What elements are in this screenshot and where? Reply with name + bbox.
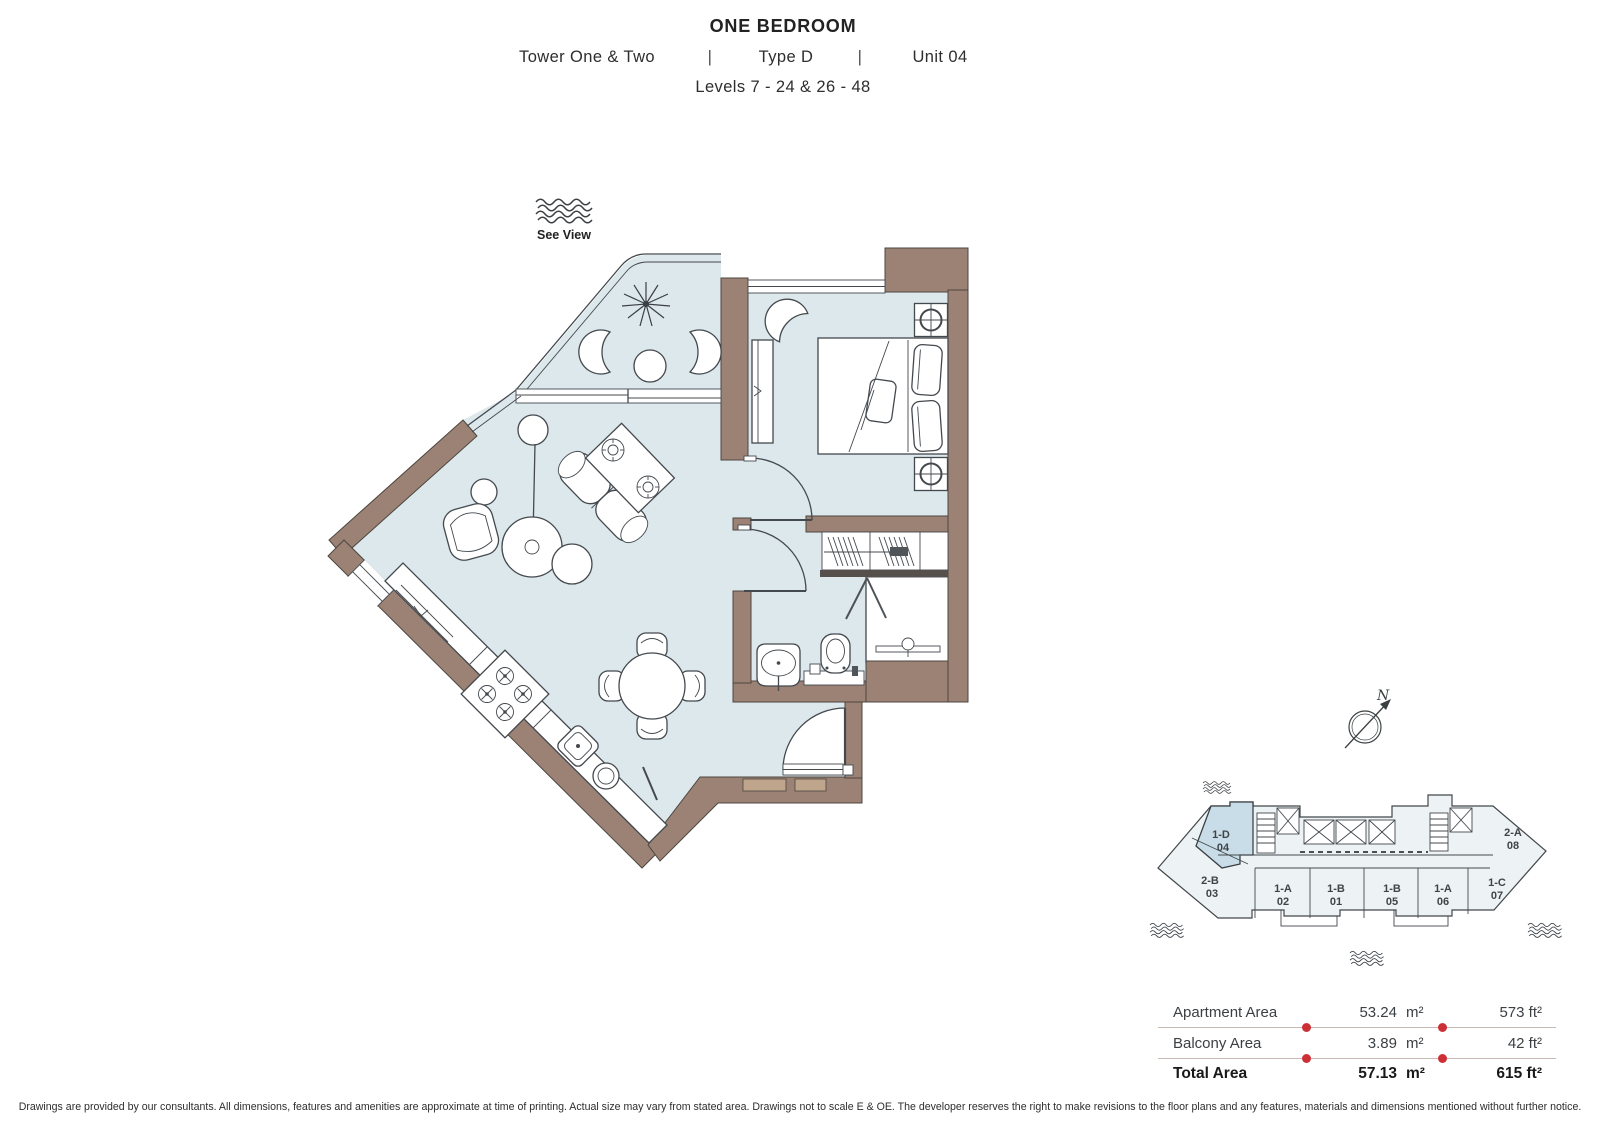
unit-label: 1-A	[1434, 883, 1452, 895]
unit-label: 1-B	[1327, 883, 1345, 895]
bed-icon	[818, 338, 948, 454]
area-value-ft: 615 ft²	[1442, 1065, 1542, 1083]
area-value-m2: 53.24	[1335, 1004, 1397, 1021]
keyplan-waves-icon	[1350, 951, 1384, 965]
table-row: Balcony Area 3.89 m² 42 ft²	[1158, 1028, 1556, 1058]
area-table: Apartment Area 53.24 m² 573 ft² Balcony …	[1158, 997, 1556, 1089]
unit-label: 04	[1217, 842, 1230, 854]
unit-label: 01	[1330, 896, 1342, 908]
area-unit-m2: m²	[1397, 1065, 1442, 1083]
unit-label: 2-B	[1201, 875, 1219, 887]
area-label: Balcony Area	[1173, 1035, 1335, 1052]
unit-label: 08	[1507, 840, 1519, 852]
entry-mat	[795, 779, 826, 791]
area-value-m2: 3.89	[1335, 1035, 1397, 1052]
wall-top-right-block	[885, 248, 968, 292]
red-dot-icon	[1438, 1054, 1447, 1063]
see-view-label: See View	[537, 228, 591, 242]
column-marker-icon	[915, 458, 948, 491]
table-divider	[1158, 1058, 1556, 1059]
wall-shower-corner	[866, 661, 948, 702]
north-compass-icon: N	[1345, 688, 1391, 748]
shower-drain	[902, 638, 914, 650]
floorplan-drawing: See View N	[0, 0, 1600, 1132]
table-divider	[1158, 1027, 1556, 1028]
unit-label: 1-D	[1212, 829, 1230, 841]
balcony-table-icon	[634, 350, 666, 382]
floorplan-page: ONE BEDROOM Tower One & Two | Type D | U…	[0, 0, 1600, 1132]
closet	[820, 532, 948, 577]
disclaimer-text: Drawings are provided by our consultants…	[0, 1101, 1600, 1113]
side-table-icon	[471, 479, 497, 505]
keyplan-waves-icon	[1150, 923, 1184, 937]
area-label: Apartment Area	[1173, 1004, 1335, 1021]
wall-bedroom-left	[721, 278, 748, 460]
wall-right	[948, 290, 968, 702]
closet-front	[820, 570, 948, 577]
unit-label: 1-A	[1274, 883, 1292, 895]
table-row: Apartment Area 53.24 m² 573 ft²	[1158, 997, 1556, 1027]
compass-n-label: N	[1376, 688, 1390, 704]
sink-icon	[757, 644, 800, 691]
red-dot-icon	[1302, 1023, 1311, 1032]
area-value-ft: 573 ft²	[1442, 1004, 1542, 1021]
unit-label: 06	[1437, 896, 1449, 908]
unit-label: 1-C	[1488, 877, 1506, 889]
red-dot-icon	[1438, 1023, 1447, 1032]
wall-bath-left	[733, 591, 751, 683]
unit-label: 1-B	[1383, 883, 1401, 895]
wall-closet-top	[806, 516, 948, 532]
unit-label: 2-A	[1504, 827, 1522, 839]
keyplan-waves-icon	[1528, 923, 1562, 937]
area-unit-m2: m²	[1397, 1004, 1442, 1021]
unit-label: 07	[1491, 890, 1503, 902]
key-plan: 1-D 04 2-B 03 1-A 02 1-B 01 1-B 05 1-A 0…	[1150, 782, 1562, 966]
column-marker-icon	[915, 304, 948, 337]
unit-label: 05	[1386, 896, 1398, 908]
area-unit-m2: m²	[1397, 1035, 1442, 1052]
table-row-total: Total Area 57.13 m² 615 ft²	[1158, 1059, 1556, 1089]
red-dot-icon	[1302, 1054, 1311, 1063]
see-view: See View	[536, 199, 592, 242]
bedroom-dresser	[752, 340, 773, 443]
area-label: Total Area	[1173, 1065, 1335, 1083]
entry-mat	[743, 779, 786, 791]
area-value-ft: 42 ft²	[1442, 1035, 1542, 1052]
keyplan-waves-icon	[1203, 782, 1231, 794]
unit-label: 03	[1206, 888, 1218, 900]
unit-label: 02	[1277, 896, 1289, 908]
area-value-m2: 57.13	[1335, 1065, 1397, 1083]
